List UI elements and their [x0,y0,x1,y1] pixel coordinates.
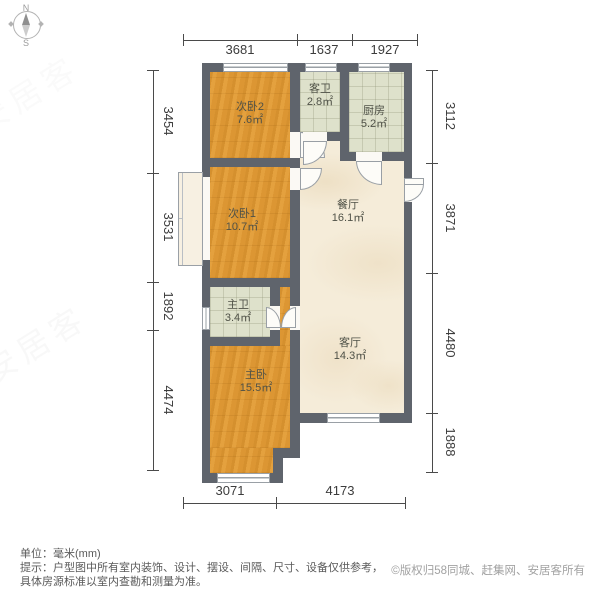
dimension-line-bottom [183,503,405,504]
dim-label-left-2: 3531 [161,197,175,257]
window-guest-bath [305,63,337,72]
room-label-bedroom1: 次卧1 10.7㎡ [207,208,277,234]
room-name: 客卫 [285,83,355,96]
dim-label-right-3: 4480 [443,313,457,373]
room-label-living: 客厅 14.3㎡ [315,337,385,363]
dim-label-bottom-2: 4173 [310,484,370,498]
dim-tick [183,34,184,46]
compass-needle-north [22,13,30,25]
dim-tick [183,497,184,509]
bay-window-mullion [182,173,183,265]
dim-label-top-2: 1637 [294,43,354,57]
door-opening-bedroom2 [290,132,300,158]
dim-tick [426,413,438,414]
dim-tick [147,70,159,71]
room-name: 次卧2 [215,101,285,114]
floor-master-bedroom-lower [210,448,273,473]
floor-master-bedroom [210,346,290,448]
footer-tip-line1: 提示：户型图中所有室内装饰、设计、摆设、间隔、尺寸、设备仅供参考， [20,562,383,575]
wall-guestbath-bottom-b [327,132,349,141]
entrance-door-arc [404,184,424,202]
room-name: 客厅 [315,337,385,350]
footer-tip-line2: 具体房源标准以室内查勘和测量为准。 [20,576,207,589]
compass-south-label: S [20,38,32,48]
room-name: 餐厅 [313,199,383,212]
door-opening-kitchen [356,152,382,161]
room-area: 10.7㎡ [207,221,277,234]
room-area: 16.1㎡ [313,212,383,225]
wall-kitchen-bottom-b [382,152,412,161]
room-label-dining: 餐厅 16.1㎡ [313,199,383,225]
dimension-line-left [153,70,154,470]
dim-tick [276,497,277,509]
room-label-kitchen: 厨房 5.2㎡ [339,105,409,131]
dim-label-left-1: 3454 [161,91,175,151]
compass-needle-south [22,25,30,37]
wall-bedroom-divider [202,158,300,167]
anjuke-watermark: 安居客 [0,293,96,392]
dim-tick [426,273,438,274]
wall-corridor-seg3 [290,190,300,306]
dim-tick [426,70,438,71]
wall-bedroom1-bottom [202,278,300,287]
window-master-bedroom [217,473,270,483]
room-label-master-bath: 主卫 3.4㎡ [203,299,273,325]
dim-tick [147,282,159,283]
door-opening-bedroom1 [290,168,300,190]
room-name: 主卧 [221,369,291,382]
dim-label-top-1: 3681 [210,43,270,57]
dim-label-left-4: 4474 [161,370,175,430]
room-label-bedroom2: 次卧2 7.6㎡ [215,101,285,127]
dim-label-right-1: 3112 [443,86,457,146]
room-area: 15.5㎡ [221,382,291,395]
anjuke-watermark-2: 安居客 [0,43,88,142]
room-area: 7.6㎡ [215,114,285,127]
dim-tick [147,330,159,331]
dim-label-bottom-1: 3071 [200,484,260,498]
wall-master-top [202,337,280,346]
room-name: 次卧1 [207,208,277,221]
room-name: 主卫 [203,299,273,312]
room-area: 14.3㎡ [315,350,385,363]
bay-window-mullion-mid [179,218,183,219]
wall-left [202,63,210,483]
dim-tick [405,497,406,509]
wall-kitchen-bottom-a [340,152,356,161]
window-kitchen [358,63,390,72]
window-living [327,413,380,423]
room-area: 3.4㎡ [203,312,273,325]
dim-label-right-4: 1888 [443,412,457,472]
dim-tick [147,470,159,471]
footer-copyright: ©版权归58同城、赶集网、安居客所有 [391,562,585,578]
dim-tick [426,163,438,164]
window-bedroom2 [223,63,288,72]
room-area: 5.2㎡ [339,118,409,131]
door-opening-guest-bath [303,132,327,141]
footer-unit-label: 单位：毫米(mm) [20,548,101,561]
dim-tick [417,34,418,46]
dim-label-left-3: 1892 [161,276,175,336]
wall-corridor-seg4 [290,330,300,458]
dim-tick [147,173,159,174]
dimension-line-top [183,40,417,41]
dim-label-top-3: 1927 [355,43,415,57]
room-name: 厨房 [339,105,409,118]
dim-label-right-2: 3871 [443,188,457,248]
dimension-line-right [432,70,433,472]
dim-tick [426,472,438,473]
room-label-master-bedroom: 主卧 15.5㎡ [221,369,291,395]
floorplan-canvas: N S 安居客 安居客 3681 1637 1927 3454 3531 189… [0,0,600,600]
